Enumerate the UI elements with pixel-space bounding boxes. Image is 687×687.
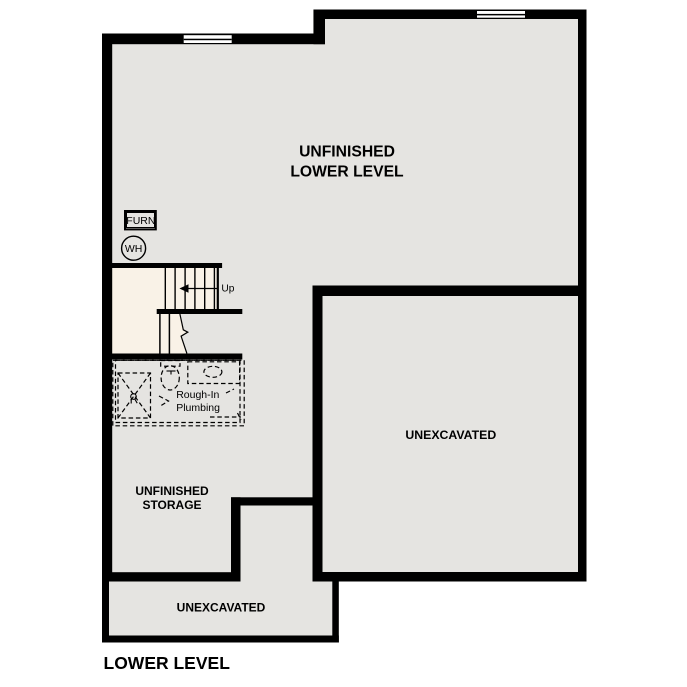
- svg-text:UNFINISHED: UNFINISHED: [135, 484, 209, 498]
- svg-text:UNEXCAVATED: UNEXCAVATED: [177, 600, 266, 614]
- svg-text:UNEXCAVATED: UNEXCAVATED: [405, 428, 496, 442]
- svg-text:FURN: FURN: [126, 215, 155, 227]
- svg-text:Plumbing: Plumbing: [176, 402, 220, 414]
- svg-text:LOWER LEVEL: LOWER LEVEL: [290, 164, 404, 181]
- svg-text:WH: WH: [125, 243, 143, 255]
- svg-text:STORAGE: STORAGE: [142, 498, 201, 512]
- svg-text:UNFINISHED: UNFINISHED: [299, 144, 395, 161]
- svg-text:Up: Up: [221, 284, 234, 295]
- svg-text:Rough-In: Rough-In: [176, 389, 219, 401]
- svg-text:LOWER LEVEL: LOWER LEVEL: [104, 653, 231, 673]
